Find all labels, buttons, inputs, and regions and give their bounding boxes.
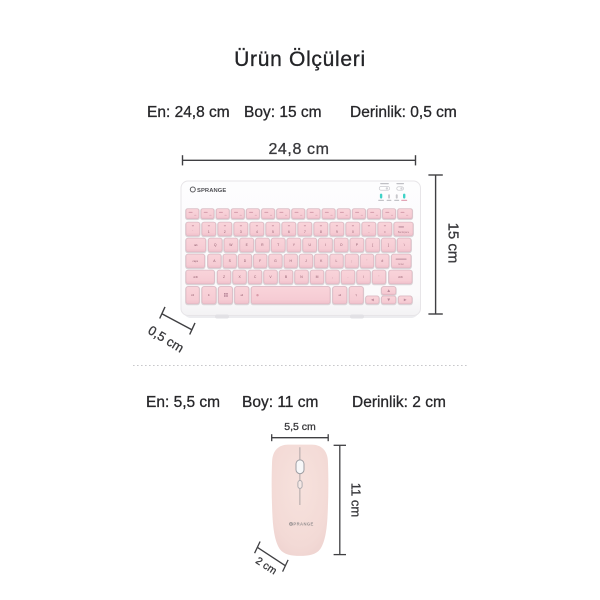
svg-text:5: 5: [272, 230, 274, 234]
svg-text:-: -: [368, 230, 369, 234]
svg-text:;: ;: [351, 259, 352, 263]
svg-text:/: /: [363, 275, 364, 279]
svg-text:SPRANGE: SPRANGE: [197, 188, 226, 194]
svg-text:L: L: [336, 259, 338, 263]
svg-text:0: 0: [352, 230, 354, 234]
svg-text:]: ]: [388, 243, 389, 247]
svg-text:9: 9: [336, 230, 338, 234]
svg-text:\: \: [404, 243, 405, 247]
svg-text:4: 4: [256, 230, 258, 234]
svg-text:Backspace: Backspace: [398, 232, 410, 234]
svg-text:G: G: [274, 259, 277, 263]
svg-text:1: 1: [208, 230, 210, 234]
svg-text:O: O: [340, 243, 343, 247]
svg-text:6: 6: [288, 230, 290, 234]
svg-text:alt: alt: [241, 294, 244, 297]
svg-text:,: ,: [332, 275, 333, 279]
svg-text:7: 7: [304, 230, 306, 234]
svg-text:=: =: [384, 230, 386, 234]
svg-text:`: `: [192, 230, 193, 234]
svg-text:T: T: [277, 243, 279, 247]
svg-text:shift: shift: [398, 276, 403, 279]
svg-text:alt: alt: [339, 294, 342, 297]
svg-text:I: I: [325, 243, 326, 247]
svg-text:#: #: [381, 259, 383, 263]
svg-text:ctrl: ctrl: [191, 294, 195, 297]
svg-text:tab: tab: [194, 243, 198, 247]
svg-text:2: 2: [224, 230, 226, 234]
svg-text:J: J: [305, 259, 307, 263]
svg-text:shift: shift: [193, 276, 198, 279]
svg-text:Q: Q: [214, 243, 217, 247]
svg-text:.: .: [348, 275, 349, 279]
svg-text:Z: Z: [223, 275, 225, 279]
svg-text:Enter: Enter: [399, 263, 405, 266]
svg-text:SPRANGE: SPRANGE: [290, 522, 314, 527]
svg-text:F: F: [259, 259, 261, 263]
svg-text:3: 3: [240, 230, 242, 234]
svg-text:8: 8: [320, 230, 322, 234]
svg-text:[: [: [372, 243, 373, 247]
svg-text:caps: caps: [193, 260, 199, 263]
svg-text:M: M: [316, 275, 319, 279]
